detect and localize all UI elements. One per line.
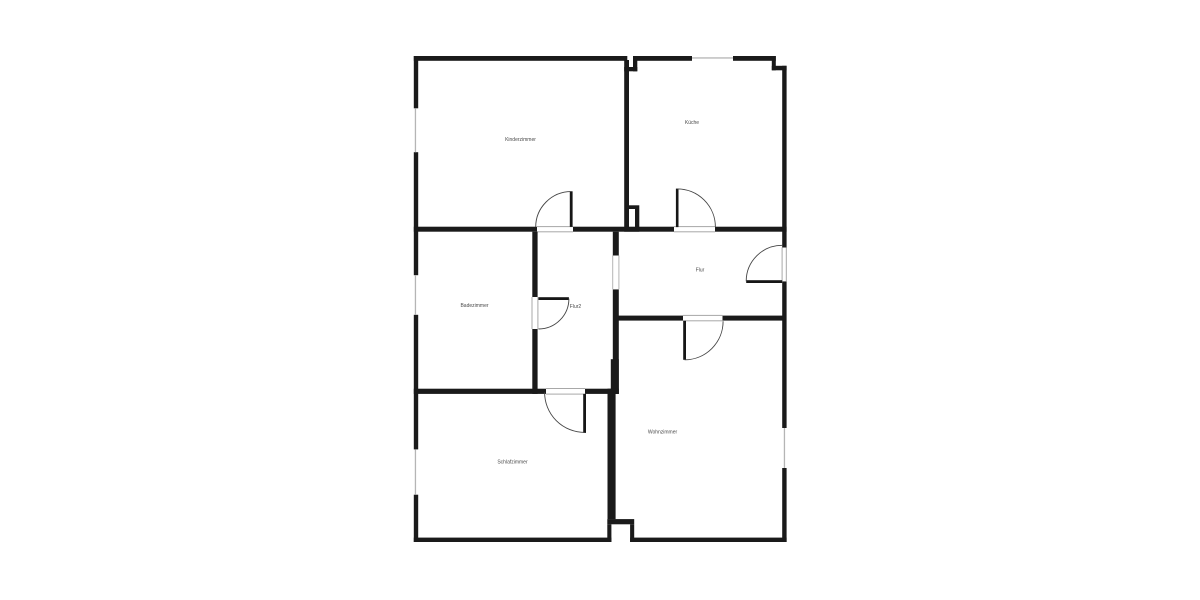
svg-text:Kinderzimmer: Kinderzimmer bbox=[505, 137, 536, 143]
svg-text:Flur: Flur bbox=[696, 268, 705, 274]
svg-text:Flur2: Flur2 bbox=[570, 304, 582, 310]
svg-text:Wohnzimmer: Wohnzimmer bbox=[648, 430, 678, 436]
svg-text:Schlafzimmer: Schlafzimmer bbox=[497, 460, 528, 466]
svg-text:Küche: Küche bbox=[685, 120, 699, 126]
svg-text:Badezimmer: Badezimmer bbox=[460, 303, 488, 309]
